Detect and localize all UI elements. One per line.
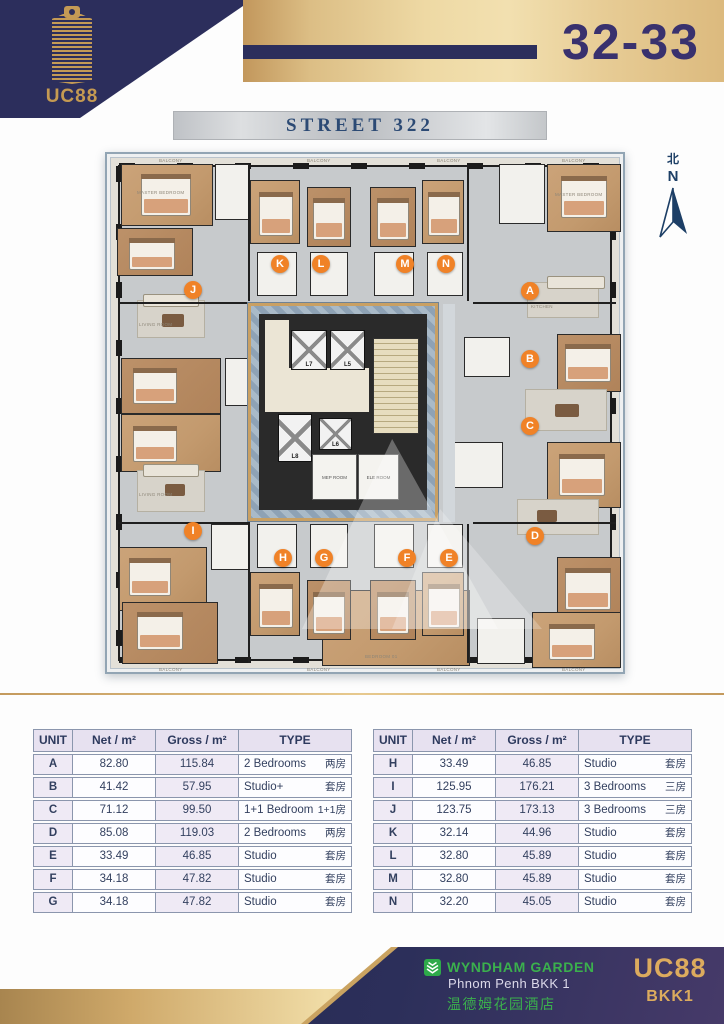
cell-net: 32.80 <box>413 870 496 889</box>
unit-marker-letter: K <box>271 255 289 273</box>
unit-marker: G <box>315 549 333 567</box>
unit-marker-letter: C <box>521 417 539 435</box>
cell-unit: E <box>34 847 73 866</box>
cell-unit: I <box>374 778 413 797</box>
unit-marker-letter: H <box>274 549 292 567</box>
bed <box>259 192 293 236</box>
bathroom <box>211 524 249 570</box>
type-chinese: 套房 <box>665 870 686 889</box>
bed <box>133 368 177 404</box>
elevator-L7: L7 <box>291 330 327 370</box>
type-chinese: 套房 <box>325 870 346 889</box>
unit-marker-letter: J <box>184 281 202 299</box>
col-header-unit: UNIT <box>34 730 73 751</box>
room-label: MEP ROOM <box>313 475 356 480</box>
table-header-row: UNIT Net / m² Gross / m² TYPE <box>33 729 352 752</box>
wall <box>118 302 250 304</box>
unit-marker: E <box>440 549 458 567</box>
cell-unit: L <box>374 847 413 866</box>
bathroom <box>499 164 545 224</box>
cell-net: 33.49 <box>73 847 156 866</box>
unit-marker: J <box>184 281 202 299</box>
cell-gross: 99.50 <box>156 801 239 820</box>
cell-type: Studio 套房 <box>239 893 351 912</box>
table-row: M 32.80 45.89 Studio 套房 <box>373 869 692 890</box>
cell-unit: H <box>374 755 413 774</box>
core-corridor <box>265 320 289 368</box>
balcony-label: BALCONY <box>437 158 461 163</box>
dining-table <box>555 404 579 417</box>
type-english: 2 Bedrooms <box>244 824 306 843</box>
elevator-label: L6 <box>320 442 351 448</box>
cell-type: Studio 套房 <box>579 893 691 912</box>
cell-gross: 46.85 <box>156 847 239 866</box>
unit-marker-letter: G <box>315 549 333 567</box>
cell-unit: F <box>34 870 73 889</box>
cell-unit: M <box>374 870 413 889</box>
sofa <box>143 464 199 477</box>
unit-marker-letter: I <box>184 522 202 540</box>
type-english: Studio <box>584 893 617 912</box>
balcony-label: BALCONY <box>159 667 183 672</box>
cell-unit: J <box>374 801 413 820</box>
cell-type: 2 Bedrooms 两房 <box>239 824 351 843</box>
type-english: Studio <box>244 893 277 912</box>
room-label: LIVING ROOM <box>139 322 172 327</box>
elevator-label: L5 <box>331 362 364 368</box>
cell-net: 32.14 <box>413 824 496 843</box>
room-label: BEDROOM 01 <box>365 654 398 659</box>
bed <box>559 454 605 496</box>
cell-unit: N <box>374 893 413 912</box>
footer-navy-wedge <box>0 947 724 1024</box>
unit-marker-letter: M <box>396 255 414 273</box>
cell-net: 32.80 <box>413 847 496 866</box>
unit-marker-letter: D <box>526 527 544 545</box>
cell-net: 34.18 <box>73 870 156 889</box>
elevator-label: L8 <box>279 454 311 460</box>
elevator-L8: L8 <box>278 414 312 462</box>
mep-room: MEP ROOM <box>312 454 357 500</box>
corridor <box>443 304 455 522</box>
type-chinese: 套房 <box>665 893 686 912</box>
type-english: Studio <box>584 847 617 866</box>
type-english: 3 Bedrooms <box>584 801 646 820</box>
table-row: C 71.12 99.50 1+1 Bedroom 1+1房 <box>33 800 352 821</box>
uc88-tower-top-icon <box>64 6 80 18</box>
unit-marker: I <box>184 522 202 540</box>
cell-net: 125.95 <box>413 778 496 797</box>
type-chinese: 两房 <box>325 755 346 774</box>
gold-separator-line <box>0 693 724 695</box>
cell-unit: C <box>34 801 73 820</box>
unit-marker: L <box>312 255 330 273</box>
unit-marker: K <box>271 255 289 273</box>
balcony-label: BALCONY <box>307 158 331 163</box>
cell-net: 33.49 <box>413 755 496 774</box>
balcony-label: BALCONY <box>307 667 331 672</box>
col-header-unit: UNIT <box>374 730 413 751</box>
cell-gross: 57.95 <box>156 778 239 797</box>
unit-marker: C <box>521 417 539 435</box>
street-label: STREET 322 <box>174 112 546 139</box>
room-label: LIVING ROOM <box>139 492 172 497</box>
unit-marker: F <box>398 549 416 567</box>
sofa <box>547 276 605 289</box>
cell-gross: 45.89 <box>496 870 579 889</box>
wall <box>248 524 250 663</box>
unit-marker: D <box>526 527 544 545</box>
table-row: D 85.08 119.03 2 Bedrooms 两房 <box>33 823 352 844</box>
cell-type: Studio 套房 <box>239 847 351 866</box>
cell-gross: 45.89 <box>496 847 579 866</box>
lift-lobby <box>265 368 369 412</box>
wyndham-logo-icon <box>424 959 441 976</box>
header-accent-stripe <box>243 45 537 59</box>
footer-navy-block <box>0 947 724 1024</box>
col-header-gross: Gross / m² <box>496 730 579 751</box>
unit-marker: N <box>437 255 455 273</box>
col-header-type: TYPE <box>239 730 351 751</box>
type-english: 1+1 Bedroom <box>244 801 313 820</box>
unit-marker: B <box>521 350 539 368</box>
cell-type: Studio 套房 <box>579 847 691 866</box>
footer-project-area: BKK1 <box>622 988 718 1006</box>
table-row: H 33.49 46.85 Studio 套房 <box>373 754 692 775</box>
col-header-type: TYPE <box>579 730 691 751</box>
type-english: Studio+ <box>244 778 283 797</box>
unit-marker-letter: A <box>521 282 539 300</box>
cell-type: 1+1 Bedroom 1+1房 <box>239 801 351 820</box>
wyndham-chinese-text: 温德姆花园酒店 <box>447 994 556 1014</box>
type-chinese: 两房 <box>325 824 346 843</box>
bathroom <box>215 164 249 220</box>
type-chinese: 套房 <box>665 824 686 843</box>
unit-marker: H <box>274 549 292 567</box>
bed <box>313 198 345 240</box>
type-chinese: 三房 <box>665 778 686 797</box>
bed <box>428 192 460 236</box>
cell-unit: K <box>374 824 413 843</box>
wyndham-brand-text: WYNDHAM GARDEN <box>447 959 595 975</box>
cell-type: Studio+ 套房 <box>239 778 351 797</box>
cell-net: 71.12 <box>73 801 156 820</box>
cell-gross: 45.05 <box>496 893 579 912</box>
cell-type: Studio 套房 <box>579 755 691 774</box>
cell-gross: 176.21 <box>496 778 579 797</box>
unit-table-right: UNIT Net / m² Gross / m² TYPE H 33.49 46… <box>373 729 692 915</box>
table-row: A 82.80 115.84 2 Bedrooms 两房 <box>33 754 352 775</box>
bed <box>137 612 183 650</box>
cell-gross: 47.82 <box>156 893 239 912</box>
room-label: KITCHEN <box>531 304 553 309</box>
cell-gross: 44.96 <box>496 824 579 843</box>
cell-gross: 173.13 <box>496 801 579 820</box>
wall <box>248 165 250 301</box>
elevator-L5: L5 <box>330 330 365 370</box>
uc88-tower-icon <box>52 10 92 84</box>
elevator-label: L7 <box>292 362 326 368</box>
cell-gross: 119.03 <box>156 824 239 843</box>
unit-marker-letter: F <box>398 549 416 567</box>
table-row: N 32.20 45.05 Studio 套房 <box>373 892 692 913</box>
unit-marker: A <box>521 282 539 300</box>
table-row: K 32.14 44.96 Studio 套房 <box>373 823 692 844</box>
room-label: MASTER BEDROOM <box>137 190 184 195</box>
unit-marker-letter: B <box>521 350 539 368</box>
table-body: H 33.49 46.85 Studio 套房 I 125.95 176.21 … <box>373 754 692 913</box>
dining-table <box>537 510 557 522</box>
cell-net: 32.20 <box>413 893 496 912</box>
col-header-gross: Gross / m² <box>156 730 239 751</box>
cell-type: 3 Bedrooms 三房 <box>579 778 691 797</box>
type-chinese: 套房 <box>665 755 686 774</box>
type-chinese: 套房 <box>325 778 346 797</box>
type-chinese: 套房 <box>325 893 346 912</box>
balcony-label: BALCONY <box>159 158 183 163</box>
street-label-bar: STREET 322 <box>173 111 547 140</box>
bed <box>561 176 607 218</box>
cell-gross: 115.84 <box>156 755 239 774</box>
table-body: A 82.80 115.84 2 Bedrooms 两房 B 41.42 57.… <box>33 754 352 913</box>
bathroom <box>464 337 510 377</box>
bed <box>565 568 611 610</box>
north-letter: N <box>645 168 701 185</box>
cell-type: 2 Bedrooms 两房 <box>239 755 351 774</box>
balcony-label: BALCONY <box>562 667 586 672</box>
cell-net: 82.80 <box>73 755 156 774</box>
cell-type: Studio 套房 <box>239 870 351 889</box>
bathroom <box>225 358 249 406</box>
cell-type: Studio 套房 <box>579 824 691 843</box>
type-chinese: 套房 <box>325 847 346 866</box>
compass-arrow-icon <box>647 185 699 241</box>
bed <box>259 584 293 628</box>
type-english: 3 Bedrooms <box>584 778 646 797</box>
table-row: B 41.42 57.95 Studio+ 套房 <box>33 777 352 798</box>
table-row: I 125.95 176.21 3 Bedrooms 三房 <box>373 777 692 798</box>
cell-type: 3 Bedrooms 三房 <box>579 801 691 820</box>
bed <box>565 344 611 382</box>
cell-net: 41.42 <box>73 778 156 797</box>
bed <box>549 624 595 660</box>
table-row: L 32.80 45.89 Studio 套房 <box>373 846 692 867</box>
floor-plan: L7 L5 L8 L6 MEP ROOM ELE ROOM MASTER BED… <box>105 152 625 674</box>
type-english: Studio <box>584 870 617 889</box>
uc88-logo-text: UC88 <box>32 86 112 108</box>
col-header-net: Net / m² <box>73 730 156 751</box>
cell-type: Studio 套房 <box>579 870 691 889</box>
table-row: J 123.75 173.13 3 Bedrooms 三房 <box>373 800 692 821</box>
bed <box>377 198 409 240</box>
type-english: Studio <box>244 870 277 889</box>
wall <box>473 522 616 524</box>
cell-net: 123.75 <box>413 801 496 820</box>
type-chinese: 三房 <box>665 801 686 820</box>
type-chinese: 套房 <box>665 847 686 866</box>
cell-unit: D <box>34 824 73 843</box>
type-english: Studio <box>244 847 277 866</box>
table-row: G 34.18 47.82 Studio 套房 <box>33 892 352 913</box>
cell-unit: A <box>34 755 73 774</box>
brochure-page: 32-33 UC88 STREET 322 北 N <box>0 0 724 1024</box>
unit-marker-letter: E <box>440 549 458 567</box>
cell-unit: G <box>34 893 73 912</box>
type-english: 2 Bedrooms <box>244 755 306 774</box>
unit-marker: M <box>396 255 414 273</box>
col-header-net: Net / m² <box>413 730 496 751</box>
north-cn-label: 北 <box>645 150 701 167</box>
type-chinese: 1+1房 <box>318 801 346 820</box>
elevator-L6: L6 <box>319 418 352 450</box>
bed <box>129 238 175 270</box>
cell-net: 34.18 <box>73 893 156 912</box>
bathroom <box>447 442 503 488</box>
room-label: MASTER BEDROOM <box>555 192 602 197</box>
north-indicator: 北 N <box>645 150 701 252</box>
cell-gross: 47.82 <box>156 870 239 889</box>
table-row: E 33.49 46.85 Studio 套房 <box>33 846 352 867</box>
unit-marker-letter: N <box>437 255 455 273</box>
cell-gross: 46.85 <box>496 755 579 774</box>
balcony-label: BALCONY <box>437 667 461 672</box>
bed <box>133 426 177 462</box>
balcony-label: BALCONY <box>562 158 586 163</box>
unit-marker-letter: L <box>312 255 330 273</box>
wyndham-location-text: Phnom Penh BKK 1 <box>448 976 570 991</box>
cell-unit: B <box>34 778 73 797</box>
bed <box>141 174 191 216</box>
cell-net: 85.08 <box>73 824 156 843</box>
table-header-row: UNIT Net / m² Gross / m² TYPE <box>373 729 692 752</box>
floor-range-title: 32-33 <box>545 13 717 71</box>
unit-table-left: UNIT Net / m² Gross / m² TYPE A 82.80 11… <box>33 729 352 915</box>
type-english: Studio <box>584 755 617 774</box>
type-english: Studio <box>584 824 617 843</box>
wall <box>467 165 469 301</box>
table-row: F 34.18 47.82 Studio 套房 <box>33 869 352 890</box>
staircase <box>373 338 419 434</box>
footer-project-name: UC88 <box>622 953 718 984</box>
bed <box>129 558 171 596</box>
